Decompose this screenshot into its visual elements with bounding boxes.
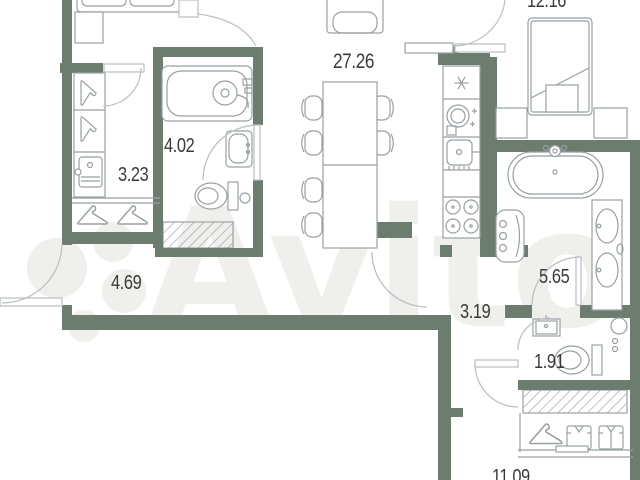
floor-plan-page: Avito xyxy=(0,0,640,480)
hanger-icon xyxy=(530,424,562,444)
floor-plan-svg xyxy=(0,0,640,480)
chair-icon xyxy=(302,213,322,237)
vent-shaft-wardrobe xyxy=(523,390,627,413)
toilet xyxy=(195,182,238,210)
bathroom1-door-leaf xyxy=(254,125,260,180)
room-label-hallway: 4.69 xyxy=(111,273,141,293)
bedroom1-door-arc xyxy=(198,14,256,46)
room-label-room-2: 11.09 xyxy=(492,467,530,480)
kitchen-column xyxy=(443,66,480,238)
drawer-unit-icon xyxy=(75,157,102,187)
wardrobe-bottom-shelf xyxy=(72,198,160,224)
room-label-bathroom-2: 5.65 xyxy=(539,267,569,287)
double-washbasin xyxy=(592,200,623,310)
vent-shaft-bathroom xyxy=(163,222,233,248)
pipe xyxy=(240,193,250,203)
washing-machine xyxy=(496,210,524,262)
room-label-bedroom: 12.16 xyxy=(527,0,566,11)
room2-door-arc xyxy=(475,364,518,407)
room-label-bathroom: 4.02 xyxy=(164,136,194,156)
bathtub xyxy=(162,66,252,121)
double-bed xyxy=(528,18,592,115)
nightstand xyxy=(594,108,627,138)
room-label-corridor: 3.19 xyxy=(460,302,490,322)
living-corridor-door-arc xyxy=(372,252,427,307)
room2-door-leaf xyxy=(475,360,518,367)
chair-icon xyxy=(302,178,322,202)
nightstand xyxy=(496,108,527,138)
washbasin xyxy=(226,131,252,167)
wardrobe-column xyxy=(74,73,105,197)
room-label-living-kitchen: 27.26 xyxy=(333,51,374,72)
room-label-wardrobe-hall: 3.23 xyxy=(118,165,148,185)
chair-icon xyxy=(302,96,322,120)
entrance-door-arc xyxy=(2,243,62,303)
bathroom2-door-leaf xyxy=(576,257,581,305)
chair-icon xyxy=(302,131,322,155)
hall-door-arc xyxy=(103,68,141,106)
hanger-icon xyxy=(118,206,148,224)
hanger-icon xyxy=(78,206,108,224)
freestanding-bathtub xyxy=(508,146,603,199)
room-label-wc: 1.91 xyxy=(534,352,564,372)
wardrobe-room2 xyxy=(518,413,633,457)
paper-holder xyxy=(611,318,627,352)
bedroom2-door-arc xyxy=(453,0,505,46)
armchair xyxy=(327,0,383,33)
kitchen-shelf xyxy=(405,43,453,53)
bedroom1-door-leaf xyxy=(179,0,198,17)
hall-door-leaf xyxy=(104,64,144,72)
nightstand-top-left xyxy=(75,12,103,43)
